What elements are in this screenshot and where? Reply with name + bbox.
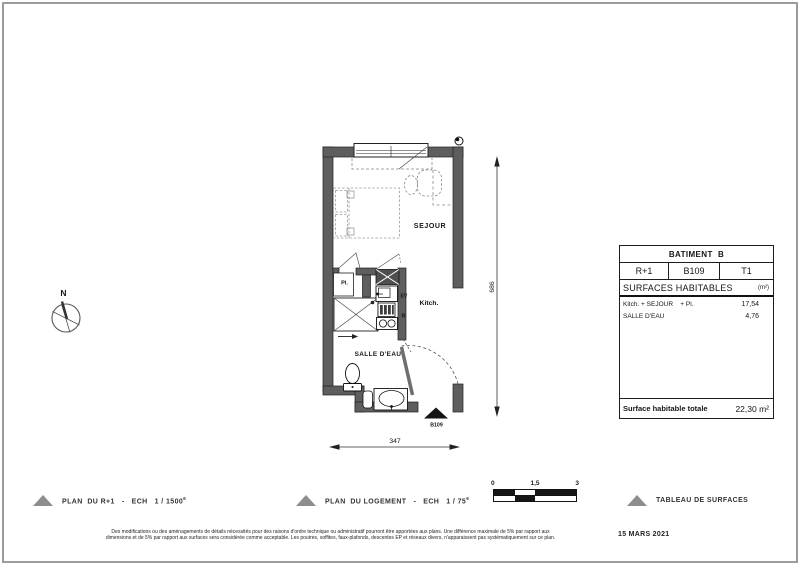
row-value: 4,76: [745, 313, 759, 320]
legend-item-tableau: TABLEAU DE SURFACES: [627, 495, 748, 506]
disclaimer-line-2: dimensions et de 5% par rapport aux surf…: [78, 535, 583, 541]
scale-segment: [494, 490, 515, 495]
legend-label: PLAN DU R+1 - ECH 1 / 1500e: [62, 496, 186, 505]
section-unit: (m²): [758, 285, 769, 291]
chair: [405, 176, 418, 195]
entrance-marker-icon: [424, 408, 448, 419]
dimension-height-label: 686: [489, 281, 496, 293]
legend-text: PLAN DU R+1 - ECH 1 / 1500: [62, 498, 183, 505]
legend-label: PLAN DU LOGEMENT - ECH 1 / 75e: [325, 496, 469, 505]
legend-label: TABLEAU DE SURFACES: [656, 497, 748, 504]
plan-sheet: N SEJOUR Kitch. SALLE D'EAU Pl. EV R B10…: [0, 0, 800, 565]
sink-label: EV: [401, 294, 408, 300]
row-value: 17,54: [741, 301, 759, 308]
section-title: SURFACES HABITABLES: [623, 283, 733, 293]
scale-segment: [494, 496, 515, 501]
legend-sup: e: [183, 496, 186, 502]
floor-cell: R+1: [620, 263, 669, 279]
surface-table-total-row: Surface habitable totale 22,30 m²: [620, 398, 773, 418]
fridge-label: R: [402, 314, 406, 320]
tick-0: 0: [491, 480, 495, 487]
scale-bar-strip: [493, 489, 577, 502]
bed: [334, 188, 400, 238]
kitchen-sink: [376, 286, 398, 302]
dimension-width-label: 347: [389, 438, 401, 445]
legend-text: PLAN DU LOGEMENT - ECH 1 / 75: [325, 498, 466, 505]
closet-label: Pl.: [341, 281, 348, 287]
scale-segment: [535, 490, 576, 495]
kitchen-appliance: [378, 303, 395, 317]
row-label: Kitch. + SEJOUR + Pl.: [623, 301, 693, 308]
table-row: SALLE D'EAU 4,76: [623, 313, 759, 320]
kitchen-label: Kitch.: [420, 300, 439, 307]
scale-bar-ticks: 0 1,5 3: [493, 480, 577, 489]
triangle-icon: [33, 495, 53, 506]
legend-text: TABLEAU DE SURFACES: [656, 497, 748, 504]
tick-3: 3: [575, 480, 579, 487]
surface-table-building: BATIMENT B: [620, 246, 773, 263]
total-label: Surface habitable totale: [623, 404, 708, 413]
surface-table-section-header: SURFACES HABITABLES (m²): [620, 280, 773, 297]
downspout-icon: [455, 137, 463, 145]
surface-table-body: Kitch. + SEJOUR + Pl. 17,54 SALLE D'EAU …: [620, 297, 773, 398]
soffit-dashes: [433, 170, 453, 205]
dimension-line-horizontal: [329, 444, 460, 449]
north-label: N: [60, 288, 66, 298]
scale-bar: 0 1,5 3: [493, 480, 577, 502]
window: [352, 144, 432, 170]
kitchen-hob: [377, 318, 398, 330]
legend-item-plan-r1: PLAN DU R+1 - ECH 1 / 1500e: [33, 495, 186, 506]
surface-table: BATIMENT B R+1 B109 T1 SURFACES HABITABL…: [619, 245, 774, 419]
closet-door-swing: [339, 253, 360, 268]
table-row: Kitch. + SEJOUR + Pl. 17,54: [623, 301, 759, 308]
row-label: SALLE D'EAU: [623, 313, 664, 320]
flow-arrow-icon: [338, 334, 358, 339]
legend-item-plan-logement: PLAN DU LOGEMENT - ECH 1 / 75e: [296, 495, 469, 506]
surface-table-unit-row: R+1 B109 T1: [620, 263, 773, 280]
closet-door-leaf: [363, 275, 371, 297]
scale-segment: [515, 496, 536, 501]
tick-1-5: 1,5: [530, 480, 539, 487]
triangle-icon: [627, 495, 647, 506]
shower: [334, 298, 378, 331]
disclaimer-text: Des modifications ou des aménagements de…: [78, 529, 583, 541]
entrance-door: [402, 339, 460, 395]
dining-table: [405, 170, 442, 196]
toilet: [344, 364, 362, 392]
total-value: 22,30 m²: [735, 404, 769, 414]
duct: [363, 391, 373, 408]
triangle-icon: [296, 495, 316, 506]
kitchen-wall-cabinet: [376, 270, 399, 285]
sejour-label: SEJOUR: [414, 223, 446, 230]
type-cell: T1: [720, 263, 773, 279]
date-label: 15 MARS 2021: [618, 531, 669, 538]
kitchen-door-swing: [378, 254, 399, 268]
washbasin: [374, 389, 408, 411]
entrance-unit-label: B109: [430, 423, 443, 429]
legend-sup: e: [466, 496, 469, 502]
bathroom-label: SALLE D'EAU: [355, 351, 402, 358]
north-compass-icon: [52, 302, 80, 333]
unit-cell: B109: [669, 263, 720, 279]
scale-segment: [515, 490, 536, 495]
scale-bar-row-bottom: [494, 496, 576, 501]
scale-segment: [535, 496, 576, 501]
